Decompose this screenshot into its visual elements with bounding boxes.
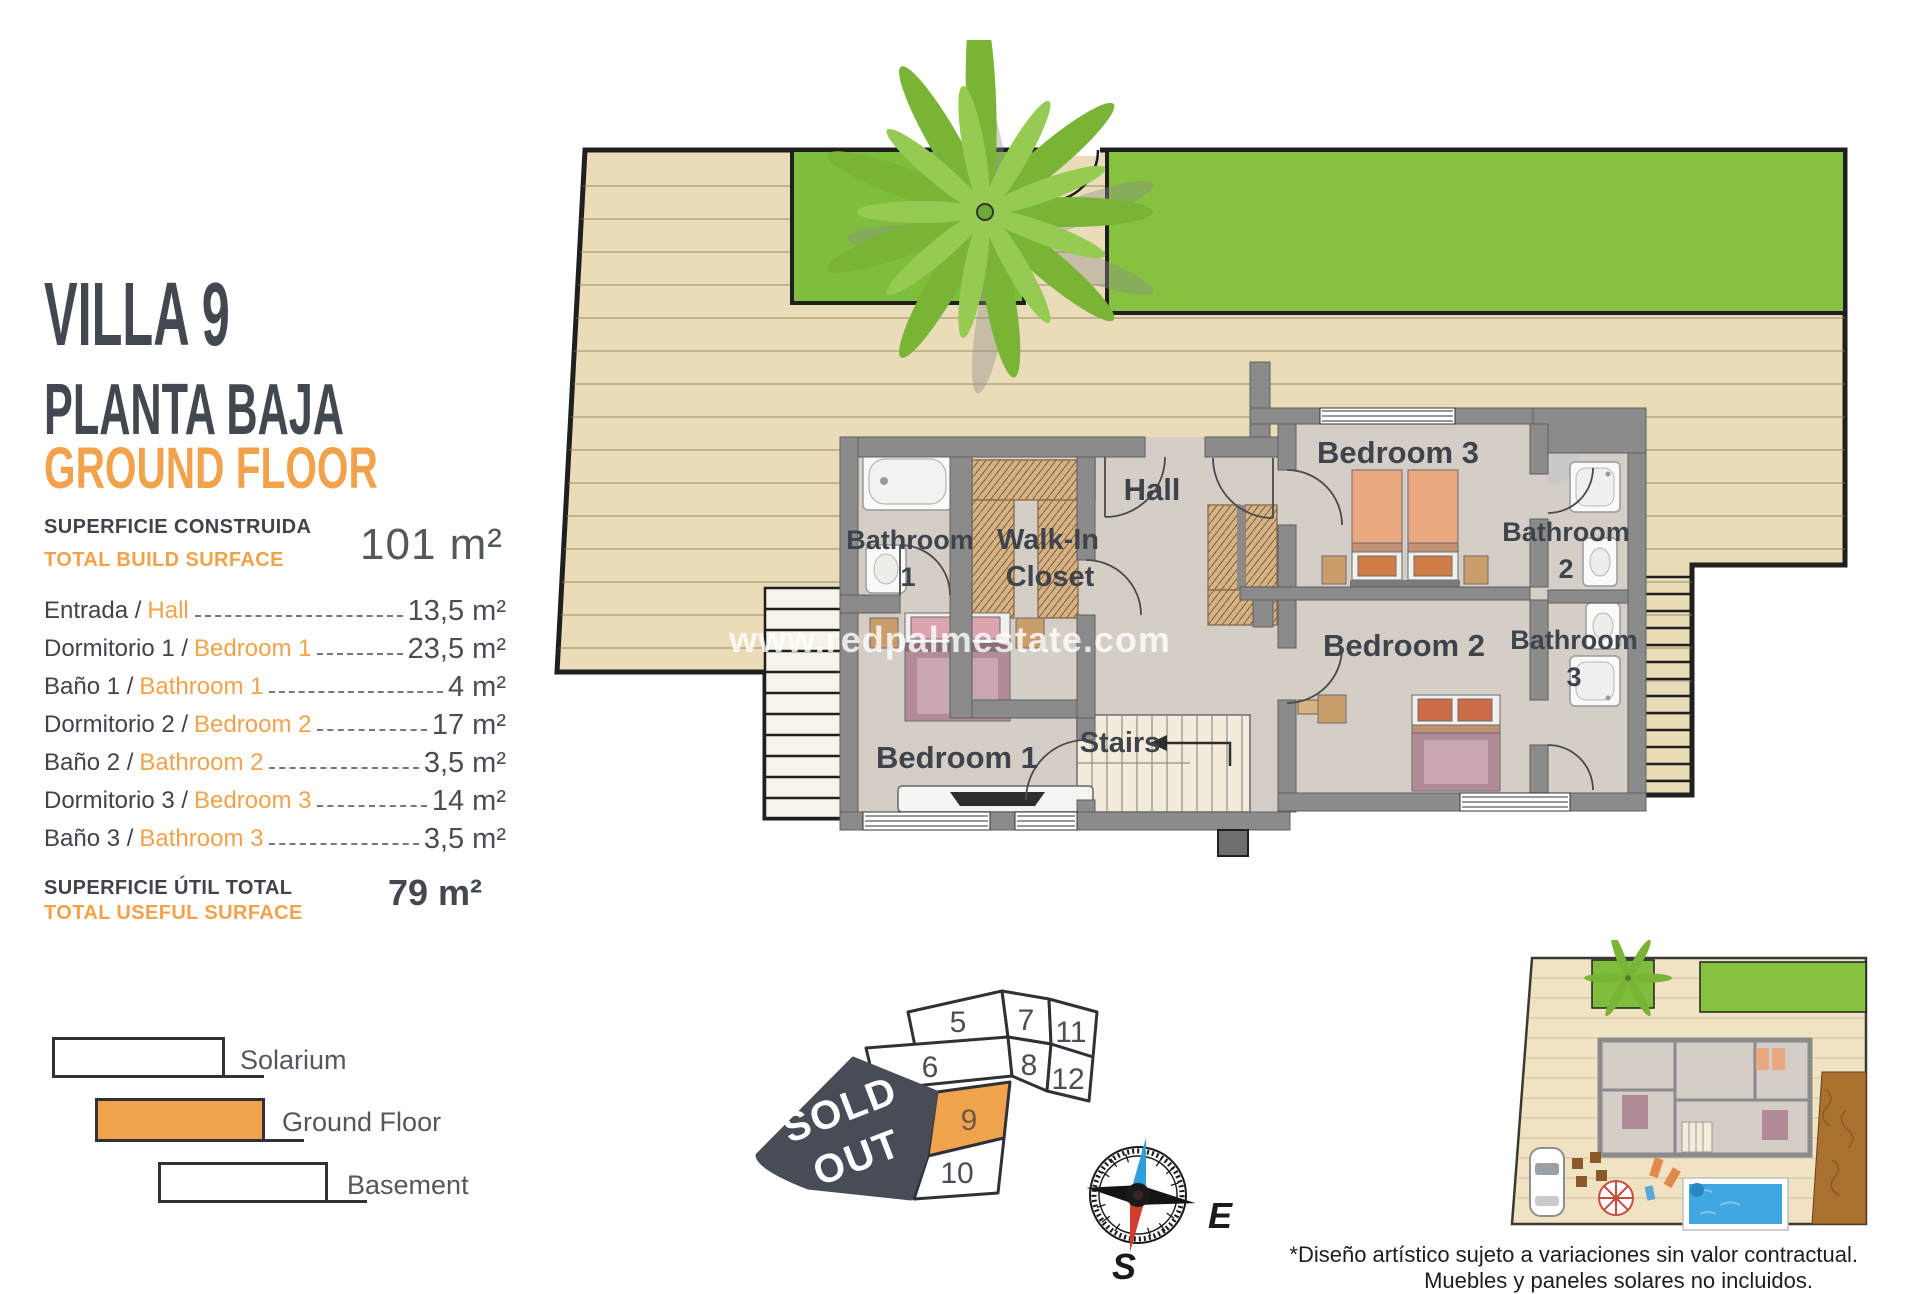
bathroom1-label: Bathroom — [846, 525, 974, 555]
room-row-bedroom1: Dormitorio 1 / Bedroom 1 23,5 m² — [44, 636, 506, 662]
wardrobe-divider — [1237, 505, 1245, 590]
bedroom1-dresser — [898, 786, 1093, 812]
build-surface-label-es: SUPERFICIE CONSTRUIDA — [44, 517, 311, 537]
room-surface-list: Entrada / Hall 13,5 m² Dormitorio 1 / Be… — [44, 598, 506, 864]
plot-number-12: 12 — [1051, 1063, 1084, 1096]
thumbnail-house — [1600, 1040, 1810, 1155]
room-row-bathroom3: Baño 3 / Bathroom 3 3,5 m² — [44, 826, 506, 852]
legend-baseline — [222, 1075, 264, 1078]
walkin-closet-label: Walk-In — [997, 524, 1099, 556]
page-title: VILLA 9 — [44, 270, 230, 360]
disclaimer-line1: *Diseño artístico sujeto a variaciones s… — [1218, 1242, 1858, 1268]
legend-swatch-solarium — [52, 1037, 225, 1078]
bathroom2-number: 2 — [1558, 554, 1573, 584]
build-surface-label-en: TOTAL BUILD SURFACE — [44, 550, 284, 570]
thumbnail-car — [1530, 1148, 1564, 1216]
bottom-graphics-svg: 5 7 11 6 8 12 9 10 SOLD OUT E S — [600, 940, 1920, 1280]
disclaimer: *Diseño artístico sujeto a variaciones s… — [1218, 1242, 1858, 1294]
stairs-label: Stairs — [1080, 727, 1161, 759]
chimney-notch — [1218, 830, 1248, 856]
legend-baseline — [262, 1139, 304, 1142]
leader-dashes — [269, 691, 443, 693]
compass-east-label: E — [1208, 1195, 1233, 1236]
hall-label: Hall — [1124, 472, 1181, 507]
bedroom2-label: Bedroom 2 — [1323, 628, 1485, 663]
leader-dashes — [317, 653, 402, 655]
thumbnail-dirt — [1812, 1072, 1866, 1224]
room-row-bathroom1: Baño 1 / Bathroom 1 4 m² — [44, 674, 506, 700]
useful-surface-label-es: SUPERFICIE ÚTIL TOTAL — [44, 878, 292, 898]
disclaimer-line2: Muebles y paneles solares no incluidos. — [1218, 1268, 1858, 1294]
leader-dashes — [269, 767, 418, 769]
bedroom3-label: Bedroom 3 — [1317, 435, 1479, 470]
bathroom3-number: 3 — [1566, 662, 1581, 692]
lawn — [1107, 150, 1845, 313]
useful-surface-label-en: TOTAL USEFUL SURFACE — [44, 903, 303, 923]
legend-swatch-basement — [158, 1162, 328, 1203]
plot-number-11: 11 — [1055, 1016, 1086, 1049]
compass-south-label: S — [1112, 1246, 1136, 1280]
plot-number-10: 10 — [940, 1157, 973, 1190]
legend-baseline — [325, 1200, 367, 1203]
legend-label-ground-floor: Ground Floor — [282, 1109, 441, 1136]
room-row-hall: Entrada / Hall 13,5 m² — [44, 598, 506, 624]
room-row-bedroom3: Dormitorio 3 / Bedroom 3 14 m² — [44, 788, 506, 814]
walkin-closet-label2: Closet — [1006, 561, 1095, 593]
bedroom1-label: Bedroom 1 — [876, 740, 1038, 775]
plot-number-8: 8 — [1021, 1049, 1038, 1082]
bathroom1-number: 1 — [900, 562, 915, 592]
legend-label-basement: Basement — [347, 1172, 469, 1199]
villa-floorplan-page: { "header": { "villa": "VILLA 9", "subti… — [0, 0, 1920, 1280]
plot-number-9: 9 — [961, 1104, 978, 1137]
leader-dashes — [195, 615, 403, 617]
leader-dashes — [269, 843, 418, 845]
plot-number-5: 5 — [950, 1006, 967, 1039]
plot-number-6: 6 — [922, 1051, 939, 1084]
legend-swatch-ground-floor — [95, 1098, 265, 1142]
room-row-bathroom2: Baño 2 / Bathroom 2 3,5 m² — [44, 750, 506, 776]
compass: E S — [1078, 1130, 1233, 1280]
site-plot-map — [757, 991, 1097, 1199]
legend-label-solarium: Solarium — [240, 1047, 347, 1074]
thumbnail-pool — [1683, 1178, 1788, 1230]
palm-trunk — [977, 204, 993, 220]
subtitle-en: GROUND FLOOR — [44, 440, 378, 498]
bathroom2-label: Bathroom — [1502, 517, 1630, 547]
site-thumbnail — [1512, 940, 1866, 1230]
floor-plan-svg: Bathroom 1 Walk-In Closet Hall Bedroom 3… — [450, 40, 1920, 900]
leader-dashes — [317, 805, 426, 807]
plot-number-7: 7 — [1018, 1004, 1035, 1037]
watermark: www.redpalmestate.com — [728, 619, 1171, 660]
room-row-bedroom2: Dormitorio 2 / Bedroom 2 17 m² — [44, 712, 506, 738]
bathroom3-label: Bathroom — [1510, 625, 1638, 655]
leader-dashes — [317, 729, 426, 731]
